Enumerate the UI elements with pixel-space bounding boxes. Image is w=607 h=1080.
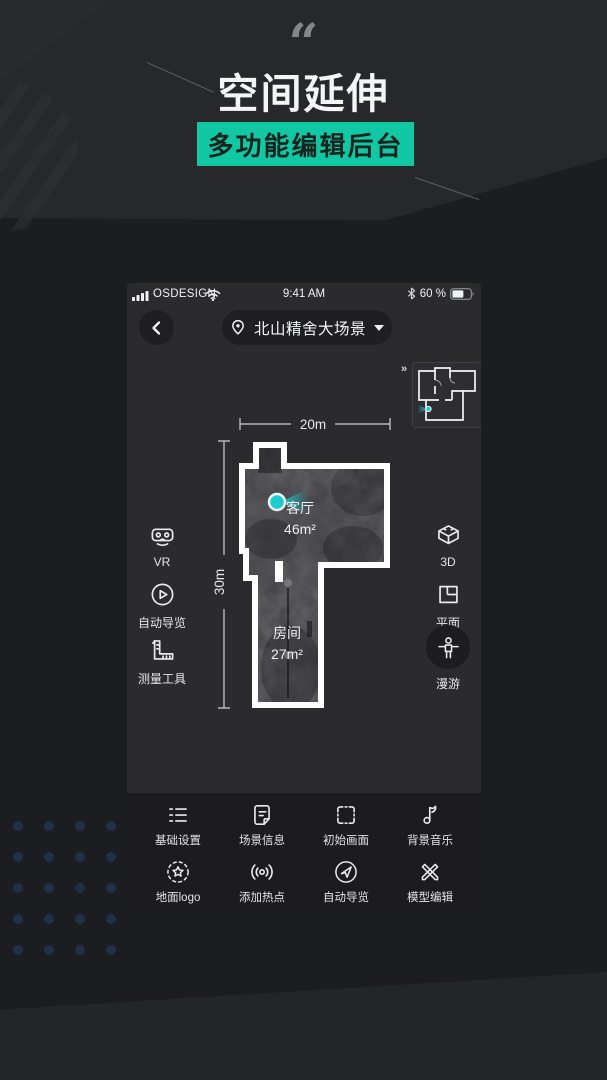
room-name: 房间 bbox=[252, 623, 322, 644]
toolbar-label: 添加热点 bbox=[239, 889, 285, 905]
page-title: 空间延伸 bbox=[0, 60, 607, 120]
minimap-camera-marker bbox=[426, 406, 431, 411]
toolbar-label: 地面logo bbox=[156, 889, 201, 905]
toolbar-basic-settings[interactable]: 基础设置 bbox=[141, 802, 215, 848]
play-circle-icon bbox=[149, 581, 176, 608]
star-dashed-circle-icon bbox=[165, 859, 191, 885]
crossed-pencils-icon bbox=[417, 859, 443, 885]
floorplan-canvas[interactable]: 20m 30m bbox=[213, 413, 399, 715]
phone-mockup: OSDESIGN 9:41 AM 60 % bbox=[127, 283, 481, 909]
battery-percent: 60 % bbox=[420, 288, 446, 300]
scene-selector[interactable]: 北山精舍大场景 bbox=[222, 310, 392, 345]
scene-title: 北山精舍大场景 bbox=[254, 317, 366, 339]
tool-label: VR bbox=[154, 555, 171, 569]
location-pin-icon bbox=[230, 319, 246, 336]
toolbar-scene-info[interactable]: 场景信息 bbox=[225, 802, 299, 848]
minimap-expand-icon[interactable]: » bbox=[401, 363, 407, 375]
ruler-icon bbox=[149, 637, 176, 664]
tool-vr[interactable]: VR bbox=[132, 522, 192, 569]
tool-auto-tour[interactable]: 自动导览 bbox=[132, 581, 192, 631]
floorplan-icon bbox=[435, 581, 462, 608]
plan-height-label: 30m bbox=[213, 569, 227, 595]
chevron-left-icon bbox=[148, 319, 166, 337]
minimap-floorplan bbox=[413, 363, 481, 426]
cube-3d-icon bbox=[435, 522, 462, 549]
toolbar-background-music[interactable]: 背景音乐 bbox=[393, 802, 467, 848]
document-icon bbox=[249, 802, 275, 828]
room-area: 46m² bbox=[265, 519, 335, 540]
diagonal-line-decoration bbox=[415, 177, 480, 200]
tool-label: 自动导览 bbox=[138, 614, 186, 631]
toolbar-label: 模型编辑 bbox=[407, 889, 453, 905]
minimap-thumbnail[interactable] bbox=[412, 362, 481, 428]
tool-3d-view[interactable]: 3D bbox=[418, 522, 478, 569]
roam-selected-circle bbox=[426, 625, 470, 669]
tool-roam[interactable]: 漫游 bbox=[418, 625, 478, 692]
room-area: 27m² bbox=[252, 644, 322, 665]
person-icon bbox=[435, 634, 462, 661]
chevron-down-icon bbox=[374, 325, 384, 331]
wall-stub bbox=[275, 561, 283, 582]
dot-grid-decoration bbox=[13, 821, 116, 955]
toolbar-ground-logo[interactable]: 地面logo bbox=[141, 859, 215, 905]
tool-label: 3D bbox=[440, 555, 455, 569]
tool-measure[interactable]: 测量工具 bbox=[132, 637, 192, 687]
frame-brackets-icon bbox=[333, 802, 359, 828]
tool-label: 漫游 bbox=[436, 675, 460, 692]
toolbar-auto-tour[interactable]: 自动导览 bbox=[309, 859, 383, 905]
status-bar: OSDESIGN 9:41 AM 60 % bbox=[127, 283, 481, 307]
toolbar-label: 初始画面 bbox=[323, 832, 369, 848]
hotspot-icon bbox=[249, 859, 275, 885]
room-label-living: 客厅 46m² bbox=[265, 498, 335, 540]
list-icon bbox=[165, 802, 191, 828]
toolbar-initial-view[interactable]: 初始画面 bbox=[309, 802, 383, 848]
vr-goggles-icon bbox=[149, 522, 176, 549]
toolbar-add-hotspot[interactable]: 添加热点 bbox=[225, 859, 299, 905]
bluetooth-icon bbox=[407, 287, 416, 300]
room-label-bedroom: 房间 27m² bbox=[252, 623, 322, 665]
toolbar-label: 场景信息 bbox=[239, 832, 285, 848]
back-button[interactable] bbox=[139, 310, 174, 345]
toolbar-label: 背景音乐 bbox=[407, 832, 453, 848]
toolbar-label: 自动导览 bbox=[323, 889, 369, 905]
tool-plan-view[interactable]: 平面 bbox=[418, 581, 478, 631]
room-name: 客厅 bbox=[265, 498, 335, 519]
tool-label: 测量工具 bbox=[138, 670, 186, 687]
subtitle-badge: 多功能编辑后台 bbox=[197, 122, 414, 166]
toolbar-model-edit[interactable]: 模型编辑 bbox=[393, 859, 467, 905]
bottom-toolbar: 基础设置 场景信息 初始画面 bbox=[127, 793, 481, 909]
music-note-icon bbox=[417, 802, 443, 828]
send-plane-icon bbox=[333, 859, 359, 885]
toolbar-label: 基础设置 bbox=[155, 832, 201, 848]
plan-width-label: 20m bbox=[300, 417, 326, 432]
battery-icon bbox=[450, 288, 475, 300]
